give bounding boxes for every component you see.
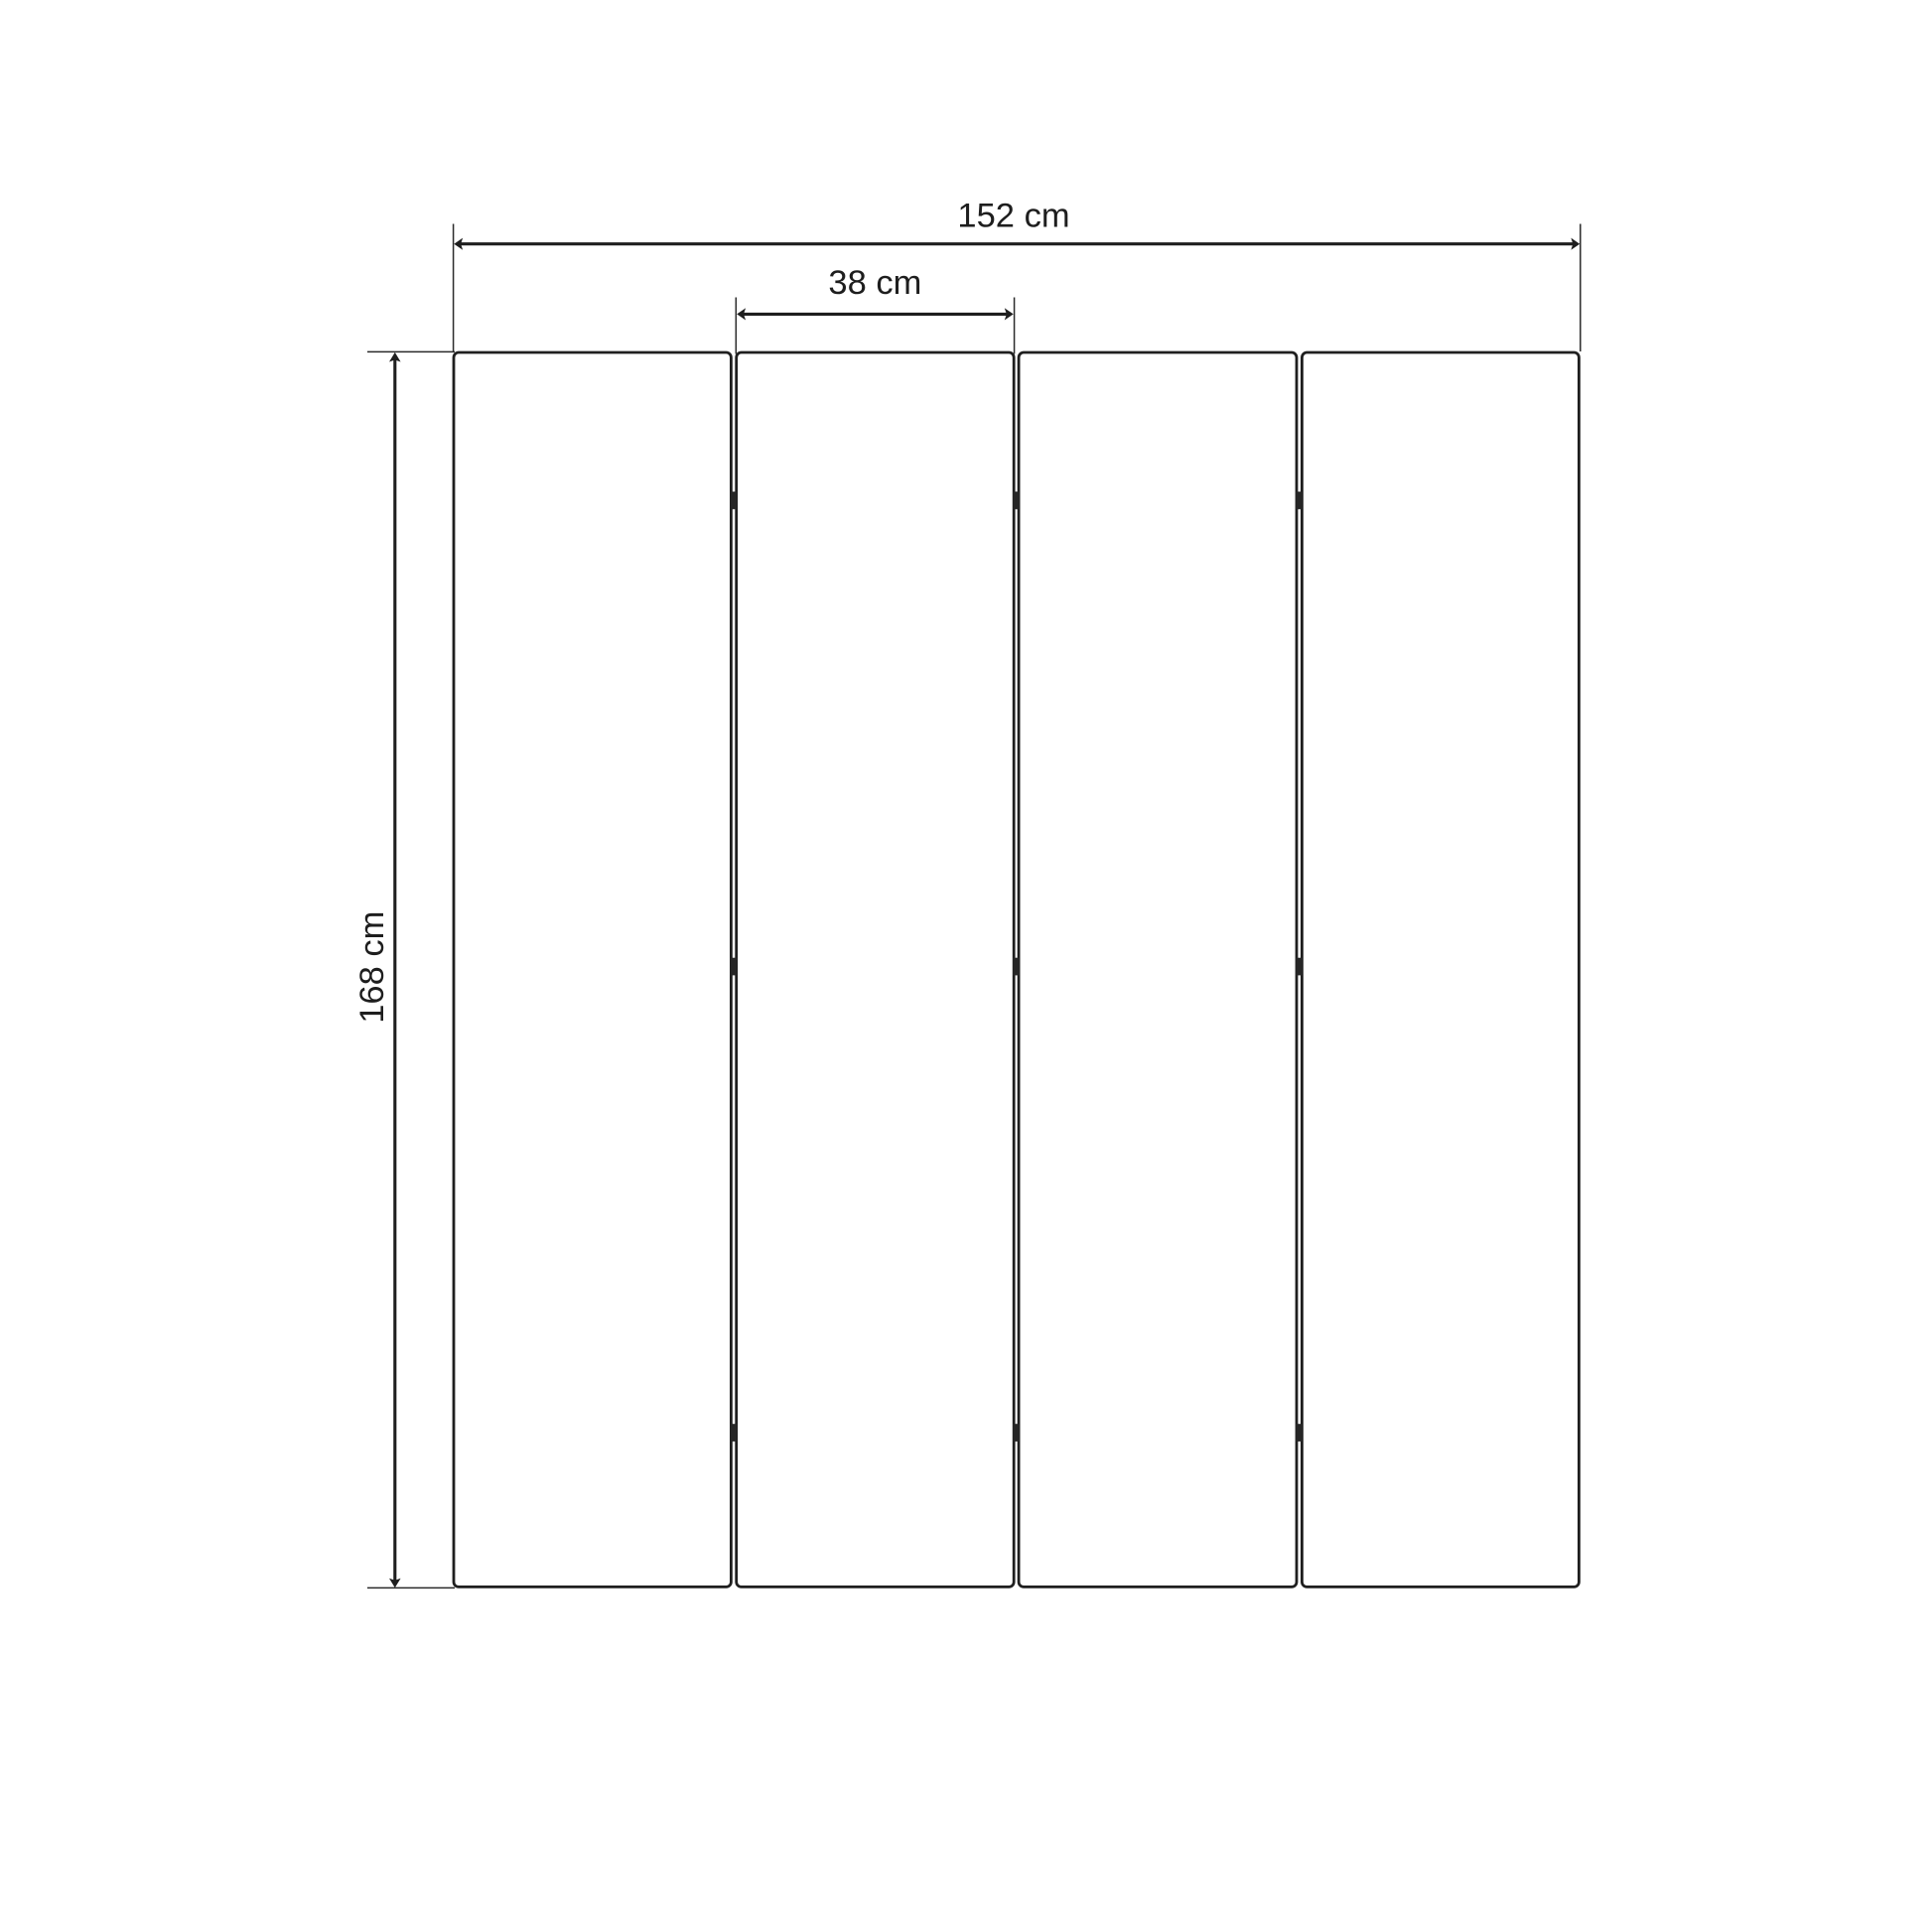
svg-text:152 cm: 152 cm — [957, 198, 1069, 235]
svg-text:168 cm: 168 cm — [353, 911, 391, 1024]
svg-text:38 cm: 38 cm — [828, 264, 921, 302]
